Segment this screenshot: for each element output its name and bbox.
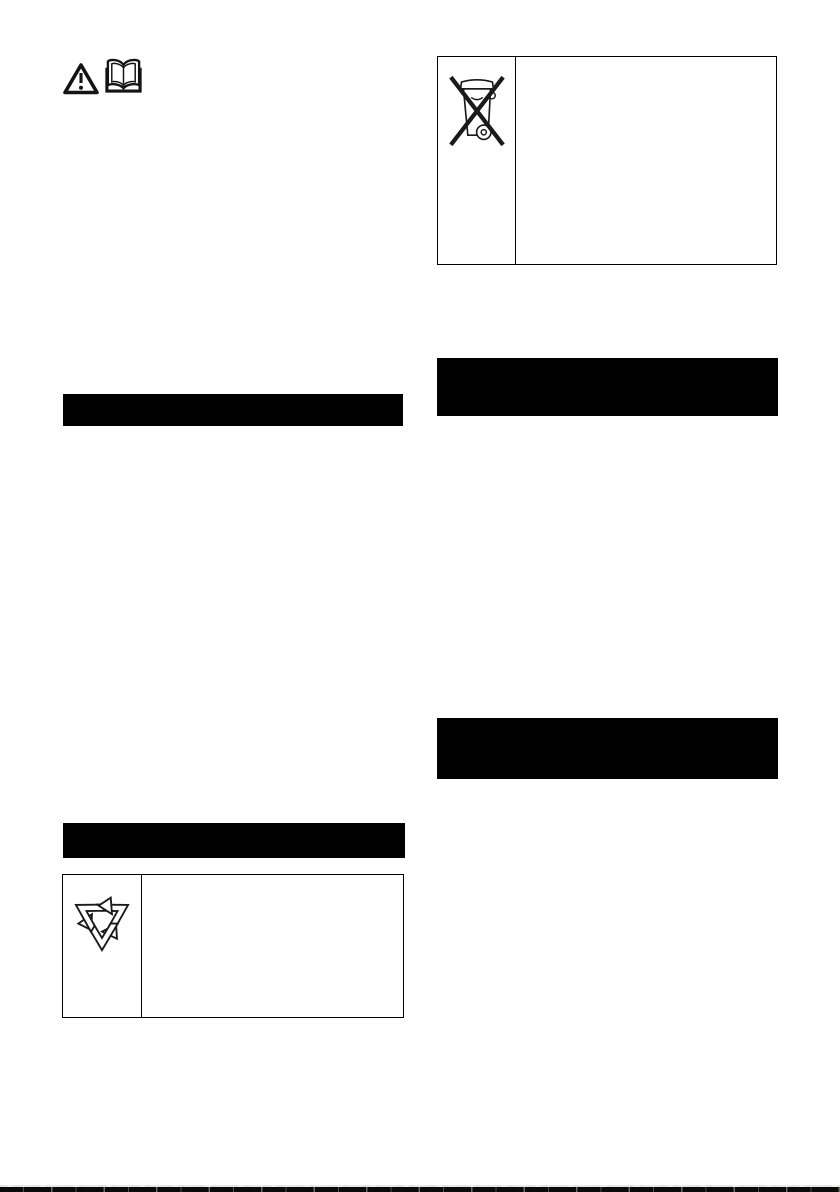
safety-icons-group [63,50,153,96]
document-page [0,0,840,1192]
warning-triangle-icon [63,61,99,96]
crossed-out-wheeled-bin-icon [448,70,506,152]
recycling-text-cell [142,875,403,1017]
recycling-symbol-cell [63,875,142,1017]
redacted-heading-bar-right-1 [437,358,778,416]
redacted-heading-bar-left-1 [63,394,403,426]
scan-edge-line [0,1187,840,1192]
redacted-heading-bar-right-2 [437,718,778,779]
open-book-icon [102,55,145,96]
weee-disposal-table [437,56,777,265]
scan-bottom-edge [0,1185,840,1192]
weee-symbol-cell [438,57,516,264]
weee-text-cell [516,57,776,264]
recycling-info-table [62,874,404,1018]
redacted-heading-bar-left-2 [63,823,405,858]
recycling-mobius-loop-icon [69,887,135,953]
